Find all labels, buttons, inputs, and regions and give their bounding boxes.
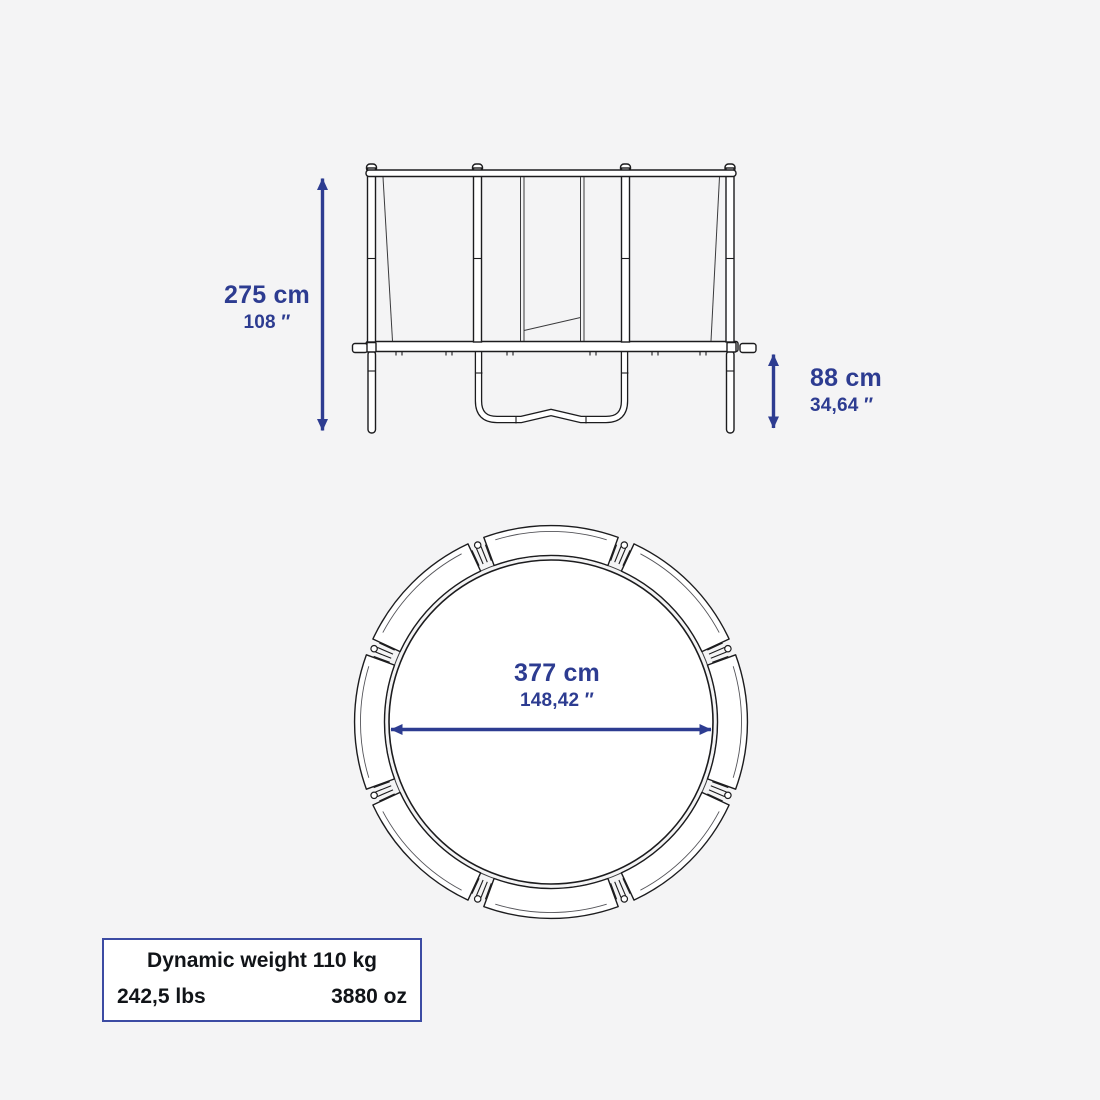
frame-height-imperial: 34,64 ″ xyxy=(810,395,950,417)
diameter-label: 377 cm 148,42 ″ xyxy=(457,659,657,712)
diameter-imperial: 148,42 ″ xyxy=(457,690,657,712)
frame-height-value: 88 cm xyxy=(810,364,950,392)
top-view-drawing xyxy=(355,526,748,919)
weight-oz-value: 3880 oz xyxy=(331,985,407,1009)
trampoline-dimensions-figure: 275 cm 108 ″ 88 cm 34,64 ″ 377 cm 148,42… xyxy=(0,0,1100,1100)
total-height-label: 275 cm 108 ″ xyxy=(187,281,347,334)
diameter-value: 377 cm xyxy=(457,659,657,687)
side-view-drawing xyxy=(353,164,757,433)
dimension-drawing-svg xyxy=(0,0,1100,1100)
dynamic-weight-title: Dynamic weight 110 kg xyxy=(117,949,407,973)
dynamic-weight-panel: Dynamic weight 110 kg 242,5 lbs 3880 oz xyxy=(102,938,422,1022)
total-height-value: 275 cm xyxy=(187,281,347,309)
frame-height-label: 88 cm 34,64 ″ xyxy=(810,364,950,417)
total-height-imperial: 108 ″ xyxy=(187,312,347,334)
weight-lbs-value: 242,5 lbs xyxy=(117,985,206,1009)
